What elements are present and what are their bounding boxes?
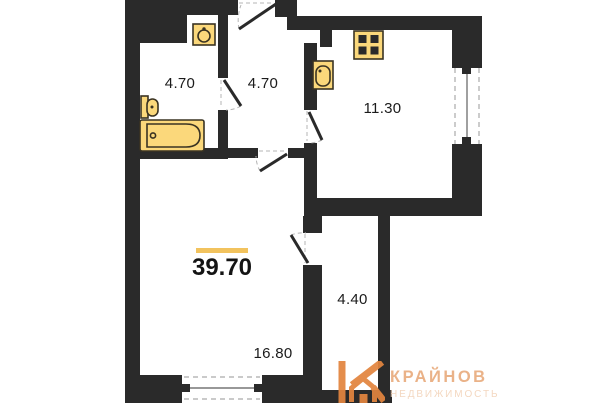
brand-name: КРАЙНОВ — [390, 369, 499, 386]
hallway-door — [256, 151, 287, 171]
kitchen-door — [307, 111, 322, 143]
total-area-label: 39.70 — [182, 254, 262, 282]
wall-right-upper — [452, 16, 482, 68]
bathroom-sink-icon — [193, 24, 215, 45]
room-area-label-living-room: 16.80 — [248, 345, 298, 362]
walls — [125, 0, 482, 403]
wall-hall-bottom-left — [228, 148, 258, 158]
wall-bathroom-lower — [218, 110, 228, 148]
living-room-window — [182, 377, 262, 399]
floor-plan: 4.70 4.70 11.30 16.80 4.40 39.70 КРАЙНОВ… — [0, 0, 605, 403]
toilet-icon — [141, 96, 158, 118]
brand-subtitle: НЕДВИЖИМОСТЬ — [390, 390, 499, 400]
entrance-door — [238, 3, 276, 29]
corridor-door — [291, 233, 308, 263]
room-area-label-corridor: 4.40 — [330, 291, 375, 308]
wall-corridor-left-stub — [303, 216, 322, 233]
wall-bathroom-upper — [218, 15, 228, 78]
wall-top-right-of-entry — [275, 0, 297, 17]
kitchen-sink-icon — [313, 61, 333, 89]
wall-step — [320, 30, 332, 47]
wall-kitchen-left-lower — [304, 143, 317, 203]
room-area-label-hallway: 4.70 — [243, 75, 283, 92]
bathroom-door — [221, 80, 241, 110]
total-area-highlight-line — [196, 248, 248, 253]
brand-text-block: КРАЙНОВ НЕДВИЖИМОСТЬ — [390, 361, 499, 400]
stove-icon — [354, 31, 383, 59]
bathtub-icon — [140, 120, 204, 151]
wall-mid-horizontal — [304, 198, 482, 216]
wall-kitchen-top — [287, 16, 453, 30]
room-area-label-kitchen: 11.30 — [355, 100, 410, 117]
wall-top-left — [125, 0, 238, 15]
brand-watermark: КРАЙНОВ НЕДВИЖИМОСТЬ — [338, 361, 499, 403]
wall-left-outer — [125, 0, 140, 403]
wall-corridor-left — [303, 265, 322, 392]
wall-shaft-block — [140, 15, 187, 43]
brand-logo-icon — [338, 361, 385, 403]
kitchen-window — [455, 66, 479, 145]
room-area-label-bathroom: 4.70 — [160, 75, 200, 92]
wall-bottom-left — [125, 375, 182, 403]
floor-plan-drawing — [0, 0, 605, 403]
